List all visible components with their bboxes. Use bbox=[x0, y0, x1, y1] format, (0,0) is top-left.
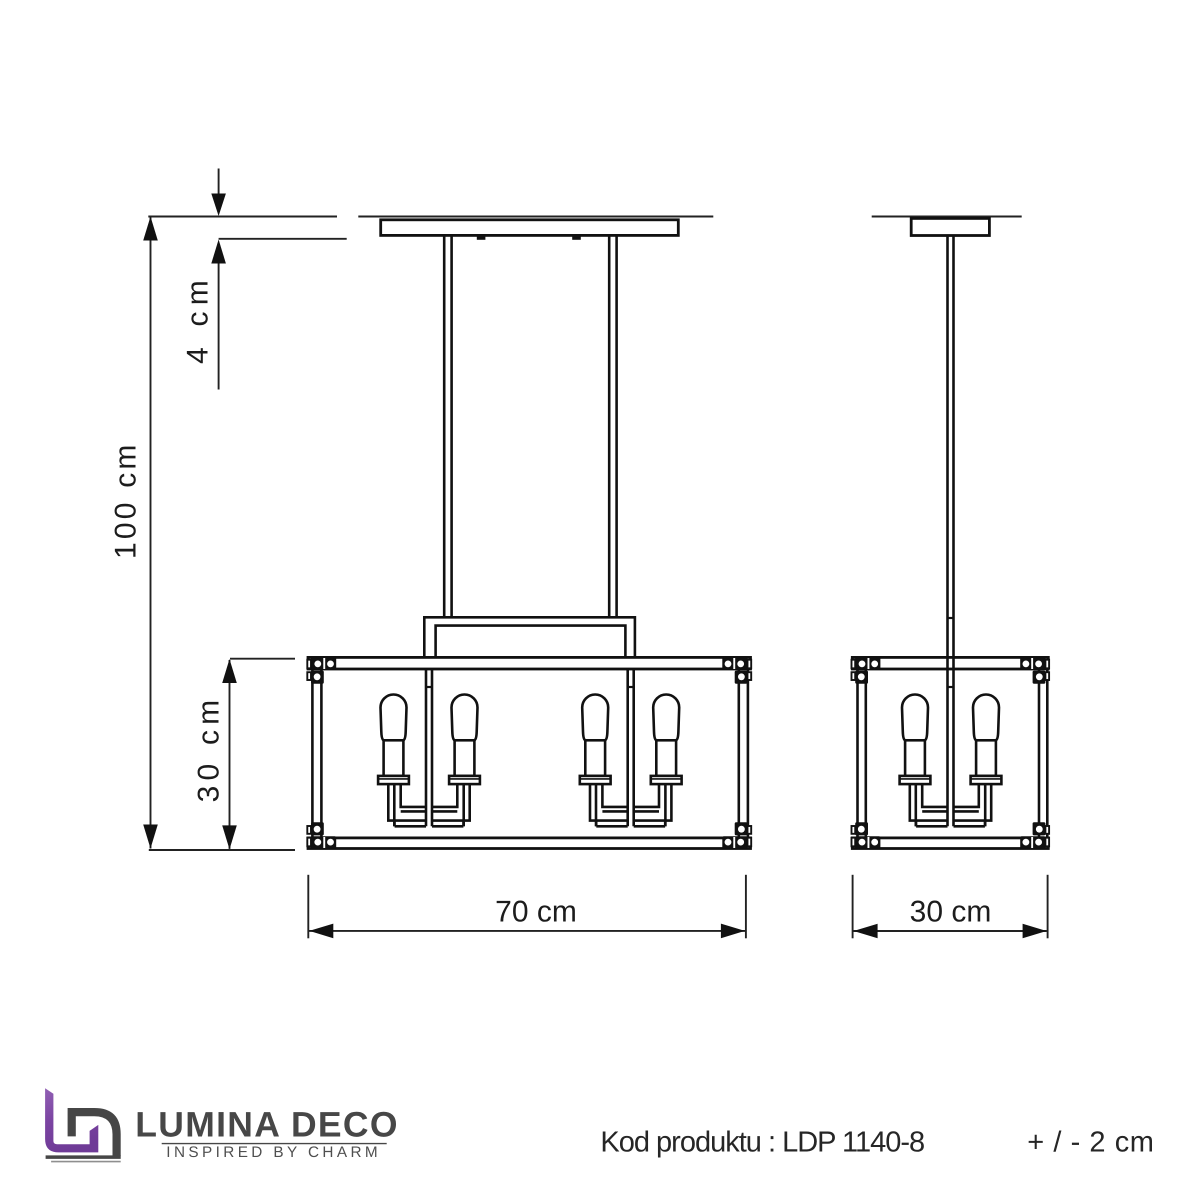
svg-text:30 cm: 30 cm bbox=[192, 695, 225, 803]
svg-text:30 cm: 30 cm bbox=[910, 896, 992, 929]
svg-text:4 cm: 4 cm bbox=[181, 274, 214, 364]
svg-text:LUMINA DECO: LUMINA DECO bbox=[135, 1104, 398, 1144]
svg-text:INSPIRED BY CHARM: INSPIRED BY CHARM bbox=[166, 1144, 381, 1161]
svg-text:Kod produktu : LDP 1140-8: Kod produktu : LDP 1140-8 bbox=[600, 1126, 924, 1158]
svg-text:70 cm: 70 cm bbox=[495, 896, 577, 929]
svg-text:100 cm: 100 cm bbox=[109, 441, 142, 559]
svg-text:+ / - 2 cm: + / - 2 cm bbox=[1027, 1126, 1154, 1158]
